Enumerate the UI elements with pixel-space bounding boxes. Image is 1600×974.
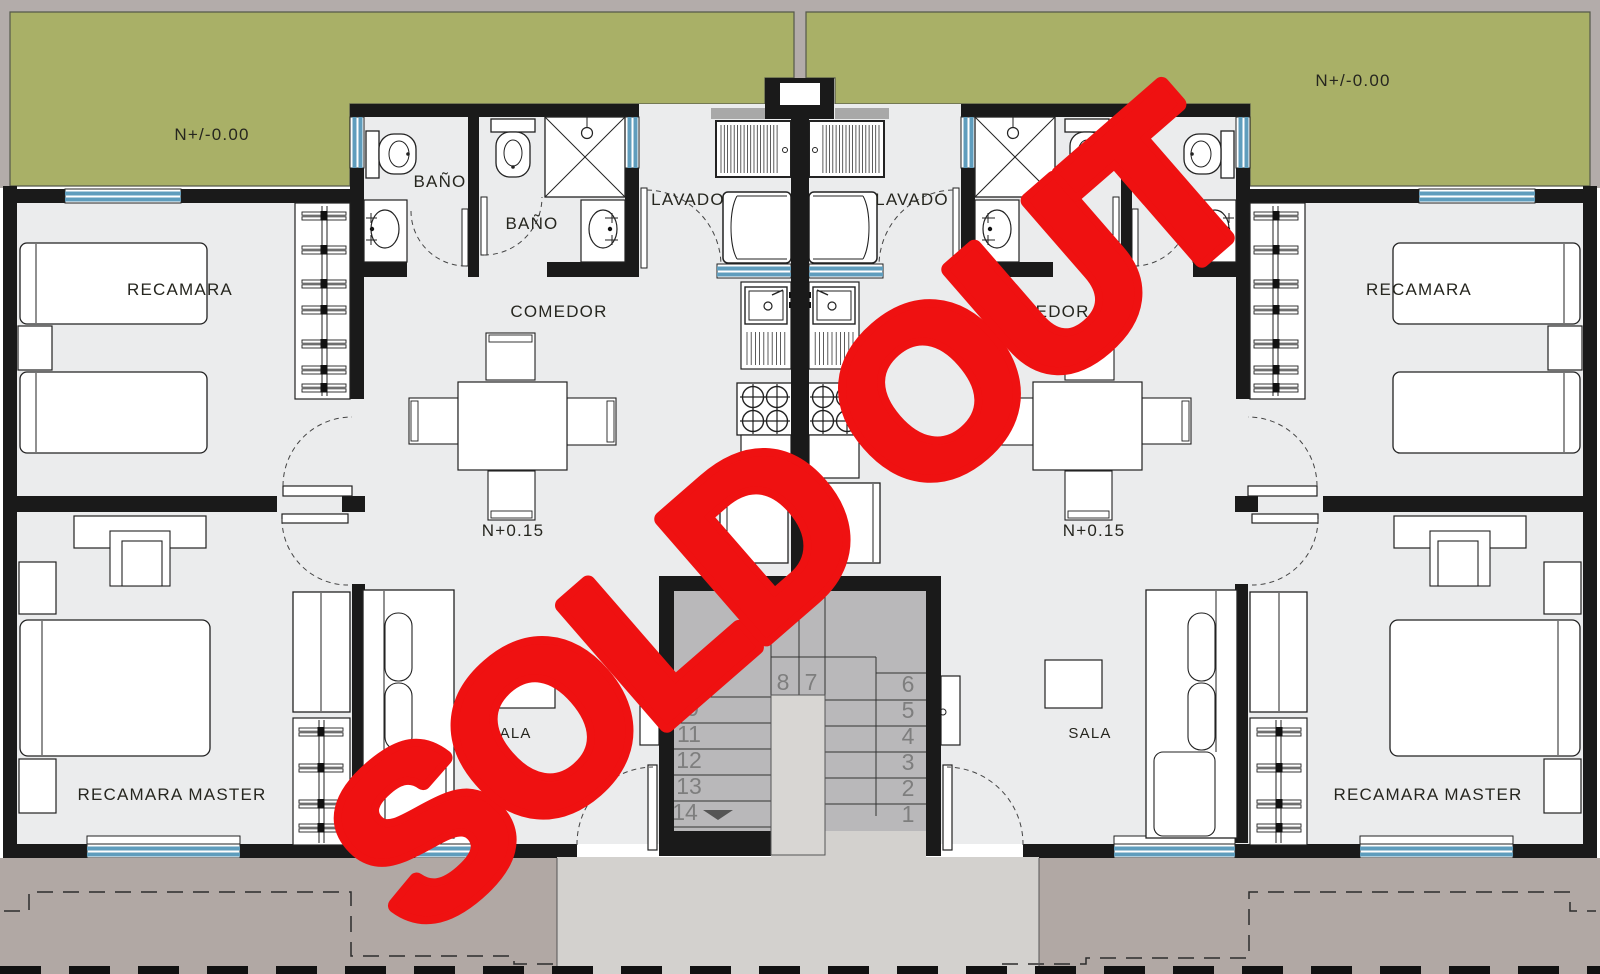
svg-text:4: 4 bbox=[902, 723, 915, 749]
svg-text:5: 5 bbox=[902, 697, 915, 723]
svg-text:RECAMARA: RECAMARA bbox=[1366, 280, 1472, 299]
svg-text:LAVADO: LAVADO bbox=[875, 190, 949, 209]
svg-text:6: 6 bbox=[902, 671, 915, 697]
svg-text:RECAMARA: RECAMARA bbox=[127, 280, 233, 299]
svg-text:COMEDOR: COMEDOR bbox=[510, 302, 607, 321]
svg-text:N+/-0.00: N+/-0.00 bbox=[174, 125, 249, 144]
svg-text:SALA: SALA bbox=[1068, 725, 1111, 742]
svg-text:RECAMARA MASTER: RECAMARA MASTER bbox=[1334, 785, 1523, 804]
svg-text:RECAMARA MASTER: RECAMARA MASTER bbox=[78, 785, 267, 804]
svg-text:N+0.15: N+0.15 bbox=[482, 521, 545, 540]
svg-text:7: 7 bbox=[805, 669, 818, 695]
svg-text:BAÑO: BAÑO bbox=[506, 214, 559, 233]
svg-text:LAVADO: LAVADO bbox=[651, 190, 725, 209]
svg-text:2: 2 bbox=[902, 775, 915, 801]
svg-text:14: 14 bbox=[672, 799, 698, 825]
svg-text:N+0.15: N+0.15 bbox=[1063, 521, 1126, 540]
svg-text:N+/-0.00: N+/-0.00 bbox=[1315, 71, 1390, 90]
svg-text:BAÑO: BAÑO bbox=[414, 172, 467, 191]
svg-text:1: 1 bbox=[902, 801, 915, 827]
svg-text:3: 3 bbox=[902, 749, 915, 775]
